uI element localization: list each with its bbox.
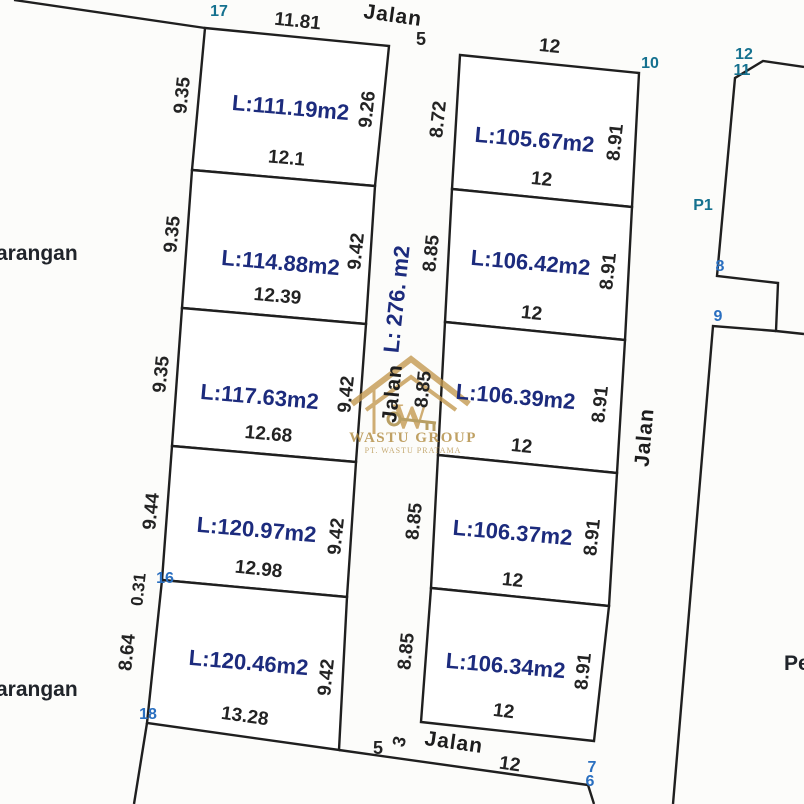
dim-r2-bottom: 12 xyxy=(520,302,543,325)
site-plan-drawing: W WASTU GROUP PT. WASTU PRATAMA L:111.19… xyxy=(0,0,804,804)
dim-l2-right: 9.42 xyxy=(344,232,369,271)
dim-l4-left-extra: 0.31 xyxy=(127,572,149,607)
watermark-brand-text: WASTU GROUP xyxy=(349,430,477,446)
dim-l5-right: 9.42 xyxy=(314,658,339,697)
bottom-road-label: Jalan xyxy=(423,727,484,758)
center-road-area-label: L: 276. m2 xyxy=(378,244,414,354)
bottom-road-width-label: 12 xyxy=(498,753,522,777)
point-6-label: 6 xyxy=(586,773,595,790)
left-lower-area-text: arangan xyxy=(0,678,78,701)
top-road-label: Jalan xyxy=(362,0,423,31)
dim-l1-top: 11.81 xyxy=(273,9,322,35)
point-18-label: 18 xyxy=(139,706,157,723)
dim-l5-left: 8.64 xyxy=(115,633,140,672)
bottom-road-south-edge xyxy=(339,750,594,804)
dim-r5-right: 8.91 xyxy=(571,652,596,691)
dim-r1-left: 8.72 xyxy=(426,100,451,139)
point-3-label: 3 xyxy=(388,734,410,749)
right-area-text: Pe xyxy=(784,652,804,675)
dim-l4-left: 9.44 xyxy=(139,492,164,531)
top-road-south-edge-west xyxy=(14,0,205,28)
point-17-label: 17 xyxy=(210,3,228,20)
point-8-label: 8 xyxy=(716,258,725,275)
dim-r3-bottom: 12 xyxy=(510,435,533,458)
dim-r4-left: 8.85 xyxy=(402,502,427,541)
east-boundary-lower xyxy=(673,326,776,804)
dim-r2-right: 8.91 xyxy=(596,252,621,291)
dim-l3-right: 9.42 xyxy=(334,375,359,414)
dim-r2-left: 8.85 xyxy=(419,234,444,273)
dim-r3-right: 8.91 xyxy=(588,385,613,424)
right-road-label: Jalan xyxy=(631,407,659,467)
dim-r3-left: 8.85 xyxy=(411,370,436,409)
dim-r4-right: 8.91 xyxy=(580,518,605,557)
dim-l1-left: 9.35 xyxy=(170,76,195,115)
dim-l4-right: 9.42 xyxy=(324,517,349,556)
left-upper-area-text: arangan xyxy=(0,242,78,265)
dim-r5-bottom: 12 xyxy=(492,700,516,723)
east-boundary-upper xyxy=(717,61,804,334)
dim-l1-bottom: 12.1 xyxy=(267,146,306,170)
watermark-subline-text: PT. WASTU PRATAMA xyxy=(365,446,462,455)
west-boundary-extension xyxy=(134,723,147,804)
point-5-top-label: 5 xyxy=(416,29,426,49)
dim-l3-left: 9.35 xyxy=(149,355,174,394)
point-11-label: 11 xyxy=(734,62,751,79)
point-p1-label: P1 xyxy=(693,197,713,214)
dim-r1-bottom: 12 xyxy=(530,168,553,191)
point-9-label: 9 xyxy=(714,308,723,325)
dim-l3-bottom: 12.68 xyxy=(244,422,293,447)
point-16-label: 16 xyxy=(156,570,174,587)
dim-r1-right: 8.91 xyxy=(603,123,628,162)
dim-r5-left: 8.85 xyxy=(394,632,419,671)
point-12-label: 12 xyxy=(735,46,753,63)
point-10-label: 10 xyxy=(641,55,659,72)
dim-r4-bottom: 12 xyxy=(501,569,524,592)
dim-l1-right: 9.26 xyxy=(355,90,380,129)
dim-r1-top: 12 xyxy=(538,35,561,58)
point-5-bottom-label: 5 xyxy=(373,738,383,758)
dim-l2-bottom: 12.39 xyxy=(253,284,302,309)
dim-l2-left: 9.35 xyxy=(160,215,185,254)
site-plan-scan: W WASTU GROUP PT. WASTU PRATAMA L:111.19… xyxy=(0,0,804,804)
